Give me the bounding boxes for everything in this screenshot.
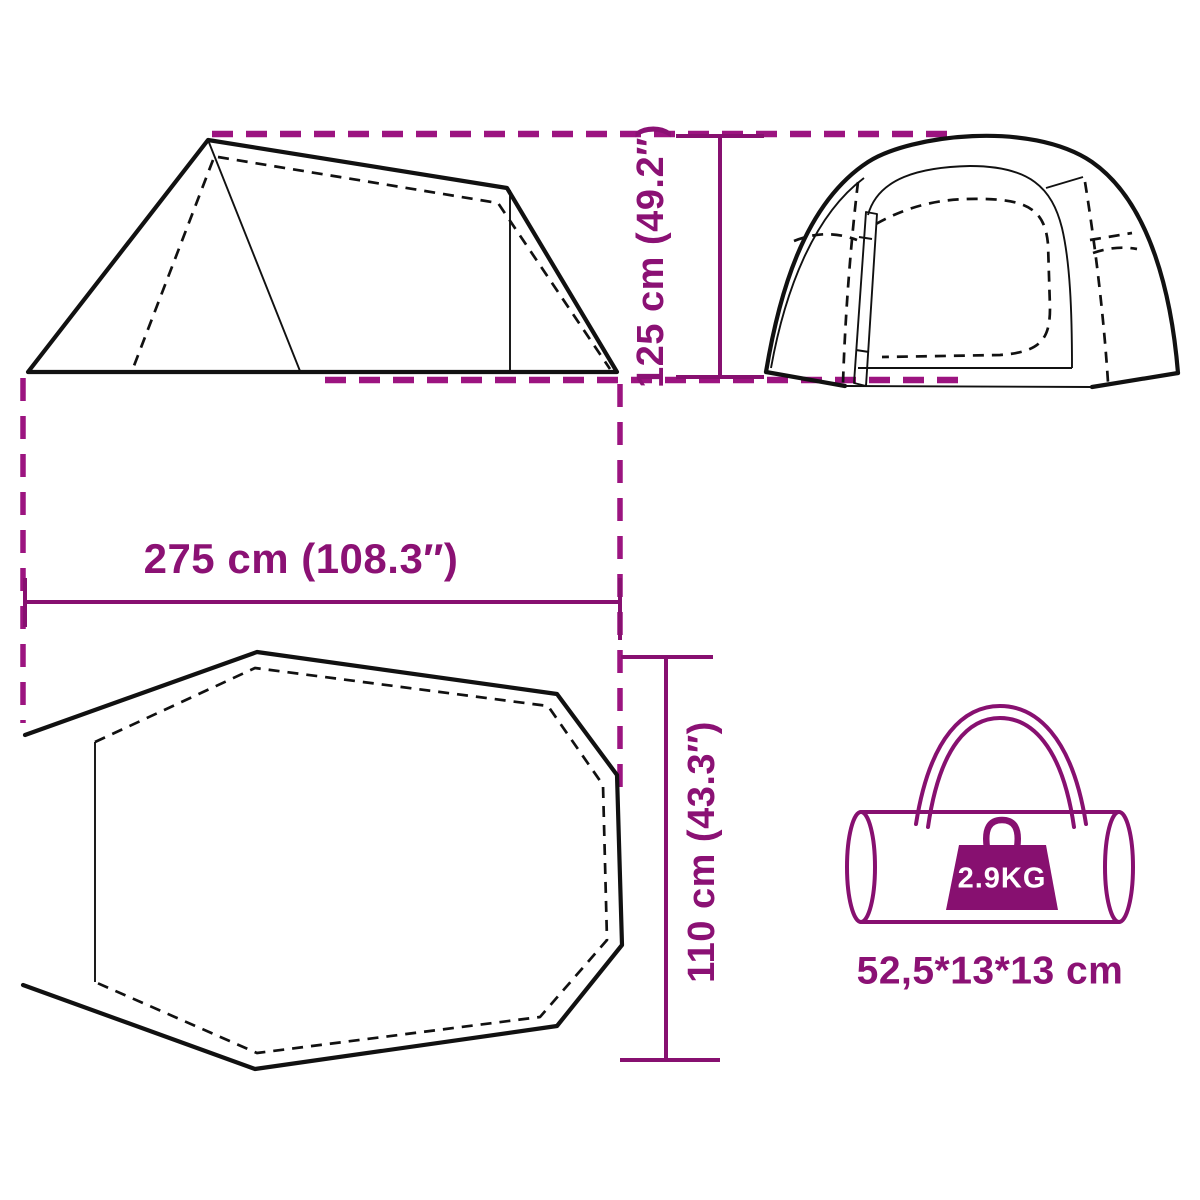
side-view-front-seam [208,140,300,371]
height-dimension-label: 125 cm (49.2″) [632,124,670,388]
front-view-outer-dome [766,136,1178,373]
front-view-door-arch [868,166,1072,368]
bag-handle-outer [916,706,1086,824]
front-view-right-shoulder-dashed-1 [1090,233,1132,240]
tent-front-view [766,136,1178,387]
front-view-right-seam-dashed [1085,182,1108,382]
front-view-ground-line [845,386,1092,387]
bag-weight-label: 2.9KG [958,865,1047,894]
bag-left-cap [847,812,875,922]
bag-right-cap [1105,812,1133,922]
floorplan-inner-dashed-outline [95,668,607,1053]
tent-floorplan-view [23,652,622,1069]
front-view-right-panel-seam [1046,177,1083,188]
front-view-pole-joint-lower [856,350,869,352]
front-view-right-shoulder-dashed-2 [1093,248,1137,253]
dimension-guides [23,134,963,790]
tent-dimensions-diagram: 125 cm (49.2″) 275 cm (108.3″) 110 cm (4… [0,0,1200,1200]
front-view-pole-joint-upper [859,237,872,239]
weight-icon-loop [986,820,1018,848]
side-view-inner-left-dashed [132,160,213,371]
floorplan-outer-outline [23,652,622,1069]
front-view-inner-door-dashed [876,199,1050,357]
width-dimension-label: 275 cm (108.3″) [144,538,459,580]
front-view-left-panel-seam [771,178,864,368]
width-dimension-line [25,578,620,640]
front-view-bottom-right-edge [1092,373,1178,387]
height-dimension-line [676,136,764,377]
diagram-line-art [0,0,1200,1200]
depth-dimension-label: 110 cm (43.3″) [683,721,721,983]
side-view-outline [28,140,617,372]
tent-side-view [28,140,617,372]
bag-size-label: 52,5*13*13 cm [857,952,1124,991]
